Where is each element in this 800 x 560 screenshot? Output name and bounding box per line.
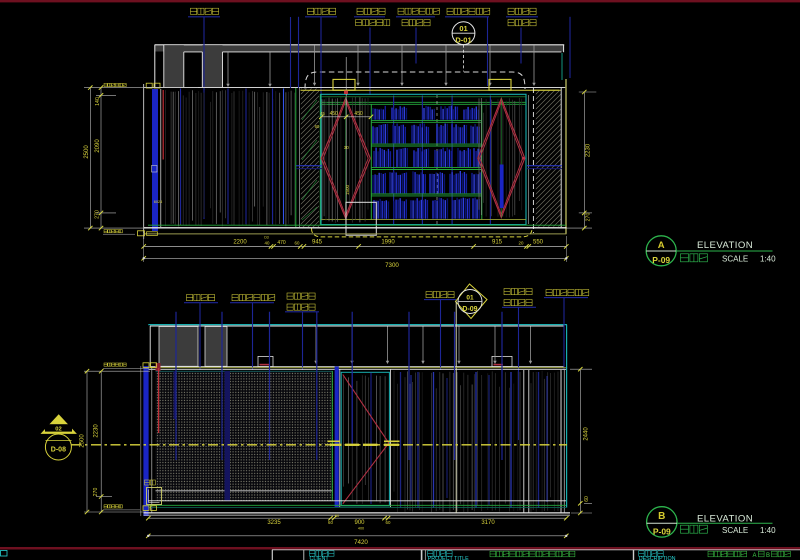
svg-text:20: 20 [519,240,524,245]
svg-text:270: 270 [95,210,101,219]
svg-text:2500: 2500 [84,145,90,159]
svg-text:450: 450 [354,111,363,117]
svg-text:7420: 7420 [354,539,368,546]
svg-text:2500: 2500 [80,434,86,448]
svg-text:02: 02 [55,427,61,433]
svg-text:ELEVATION: ELEVATION [697,240,753,251]
svg-text:3170: 3170 [481,520,495,526]
svg-text:945: 945 [312,240,323,246]
svg-text:60: 60 [584,496,590,502]
svg-text:550: 550 [533,240,544,246]
svg-text:7300: 7300 [385,262,399,269]
svg-text:D-09: D-09 [462,306,477,313]
svg-text:60: 60 [335,514,339,518]
svg-text:140: 140 [95,97,101,106]
svg-text:B: B [658,511,665,522]
svg-text:470: 470 [277,240,286,246]
svg-text:D3: D3 [264,236,269,240]
svg-text:270: 270 [586,213,592,222]
svg-text:01: 01 [466,295,474,302]
svg-text:400: 400 [358,527,364,531]
svg-text:SCALE: SCALE [722,255,748,264]
svg-text:6024: 6024 [154,200,162,204]
svg-text:900: 900 [354,520,365,526]
svg-text:1:40: 1:40 [760,526,776,535]
svg-text:60: 60 [328,520,333,525]
svg-text:B: B [766,553,770,559]
svg-text:PROJECT TITLE: PROJECT TITLE [428,556,470,560]
svg-text:915: 915 [492,240,503,246]
svg-text:60: 60 [295,240,300,245]
svg-text:1990: 1990 [381,240,395,246]
svg-text:2230: 2230 [94,424,100,438]
svg-text:P-09: P-09 [653,527,671,537]
svg-text:450: 450 [330,111,339,117]
svg-text:DESCRIPTION: DESCRIPTION [639,556,676,560]
svg-text:CLIENT: CLIENT [310,556,330,560]
svg-text:2230: 2230 [586,143,592,157]
svg-text:40: 40 [265,240,270,245]
svg-text:60: 60 [315,124,320,129]
svg-text:60: 60 [386,520,391,525]
svg-text:A: A [753,553,757,559]
svg-text:1:40: 1:40 [760,255,776,264]
svg-text:P-09: P-09 [652,255,670,265]
svg-text:ELEVATION: ELEVATION [697,514,753,525]
svg-text:A: A [658,240,665,251]
svg-text:SCALE: SCALE [722,526,748,535]
svg-text:2090: 2090 [95,139,101,153]
svg-text:45: 45 [320,111,325,116]
svg-text:2440: 2440 [584,427,590,441]
svg-text:01: 01 [459,24,467,33]
svg-text:270: 270 [93,488,99,497]
svg-text:2200: 2200 [233,240,247,246]
svg-text:1500: 1500 [345,184,350,195]
svg-text:3235: 3235 [267,520,281,526]
svg-text:30: 30 [344,145,350,150]
svg-text:D-08: D-08 [51,447,66,454]
svg-text:D-01: D-01 [455,36,471,45]
